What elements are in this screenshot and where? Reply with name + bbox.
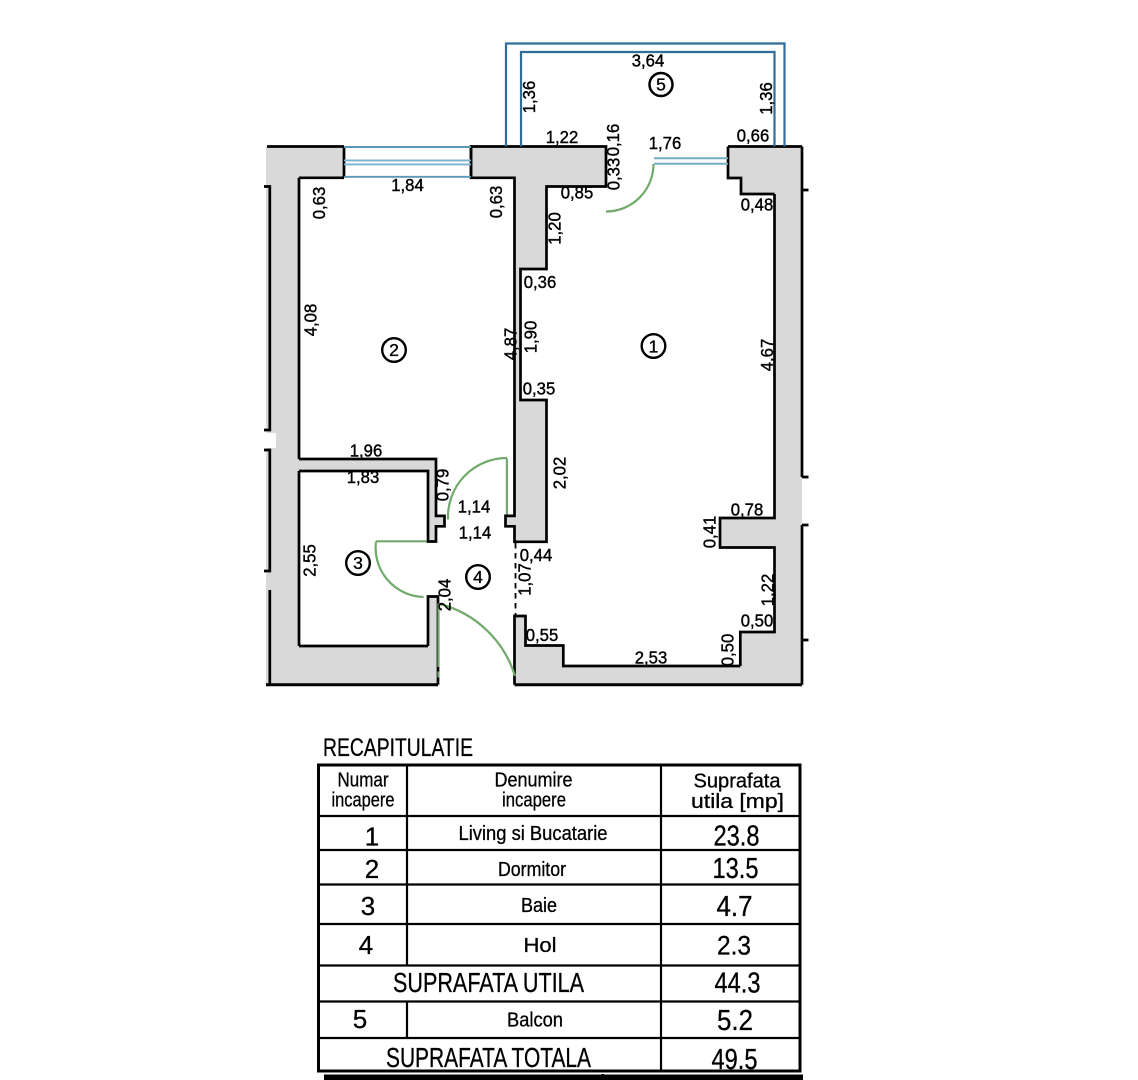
svg-text:0,50: 0,50 — [741, 611, 774, 631]
svg-text:0,63: 0,63 — [486, 186, 506, 219]
svg-text:4,67: 4,67 — [757, 339, 777, 372]
svg-text:2.3: 2.3 — [717, 931, 751, 961]
svg-text:1,36: 1,36 — [756, 82, 776, 115]
svg-text:0,63: 0,63 — [309, 187, 329, 220]
svg-text:5: 5 — [656, 75, 666, 95]
svg-text:1,22: 1,22 — [758, 574, 778, 607]
svg-text:Baie: Baie — [521, 895, 557, 917]
svg-text:0,33: 0,33 — [604, 158, 624, 191]
svg-text:Suprafata: Suprafata — [694, 771, 782, 793]
svg-text:Balcon: Balcon — [507, 1010, 563, 1032]
svg-text:1: 1 — [365, 822, 379, 852]
svg-text:SUPRAFATA UTILA: SUPRAFATA UTILA — [393, 967, 584, 998]
svg-text:Dormitor: Dormitor — [498, 859, 566, 881]
svg-text:2,55: 2,55 — [300, 544, 320, 577]
svg-text:2,02: 2,02 — [550, 457, 570, 490]
svg-text:1,90: 1,90 — [521, 320, 541, 353]
svg-text:1,20: 1,20 — [545, 212, 565, 245]
svg-text:RECAPITULATIE: RECAPITULATIE — [323, 734, 473, 762]
svg-text:3,64: 3,64 — [632, 51, 665, 71]
svg-text:Numar: Numar — [338, 770, 389, 792]
svg-text:2: 2 — [365, 854, 379, 884]
svg-text:4.7: 4.7 — [717, 891, 753, 923]
svg-text:1,07: 1,07 — [515, 563, 535, 596]
svg-text:49.5: 49.5 — [712, 1044, 758, 1076]
svg-text:0,78: 0,78 — [731, 500, 764, 520]
svg-text:13.5: 13.5 — [713, 853, 759, 885]
svg-text:0,55: 0,55 — [526, 625, 559, 645]
svg-text:1,14: 1,14 — [458, 497, 491, 517]
svg-text:4,08: 4,08 — [301, 304, 321, 337]
svg-text:incapere: incapere — [332, 790, 395, 812]
svg-text:0,79: 0,79 — [433, 469, 453, 502]
svg-text:incapere: incapere — [502, 790, 566, 812]
svg-text:44.3: 44.3 — [715, 968, 761, 1000]
svg-text:23.8: 23.8 — [714, 821, 760, 853]
svg-text:0,41: 0,41 — [700, 516, 720, 549]
svg-text:Denumire: Denumire — [495, 770, 573, 792]
svg-text:3: 3 — [353, 553, 363, 573]
svg-text:utila [mp]: utila [mp] — [691, 791, 784, 813]
svg-text:1,14: 1,14 — [459, 523, 492, 543]
svg-text:0,50: 0,50 — [718, 633, 738, 666]
svg-text:1,36: 1,36 — [519, 81, 539, 114]
svg-text:0,66: 0,66 — [737, 126, 770, 146]
svg-text:1,96: 1,96 — [350, 441, 383, 461]
svg-text:3: 3 — [361, 891, 375, 921]
svg-text:1,83: 1,83 — [347, 467, 380, 487]
svg-text:1,22: 1,22 — [546, 127, 579, 147]
svg-text:4: 4 — [359, 930, 373, 960]
svg-text:0,44: 0,44 — [520, 545, 553, 565]
svg-text:Living si Bucatarie: Living si Bucatarie — [459, 823, 608, 845]
svg-text:5: 5 — [353, 1004, 367, 1034]
svg-text:1: 1 — [649, 336, 659, 356]
svg-text:4,87: 4,87 — [501, 328, 521, 361]
svg-text:1,84: 1,84 — [391, 175, 424, 195]
svg-text:Hol: Hol — [524, 935, 557, 957]
svg-text:0,35: 0,35 — [523, 379, 556, 399]
svg-text:0,48: 0,48 — [741, 195, 774, 215]
svg-text:0,85: 0,85 — [561, 183, 594, 203]
svg-text:2,53: 2,53 — [635, 648, 668, 668]
svg-text:4: 4 — [473, 567, 483, 587]
svg-text:0,16: 0,16 — [603, 124, 623, 157]
svg-text:5.2: 5.2 — [717, 1005, 753, 1037]
svg-text:2,04: 2,04 — [435, 578, 455, 611]
svg-text:2: 2 — [389, 340, 399, 360]
svg-text:1,76: 1,76 — [649, 133, 682, 153]
svg-text:0,36: 0,36 — [524, 272, 557, 292]
svg-text:SUPRAFATA TOTALA: SUPRAFATA TOTALA — [386, 1042, 591, 1073]
